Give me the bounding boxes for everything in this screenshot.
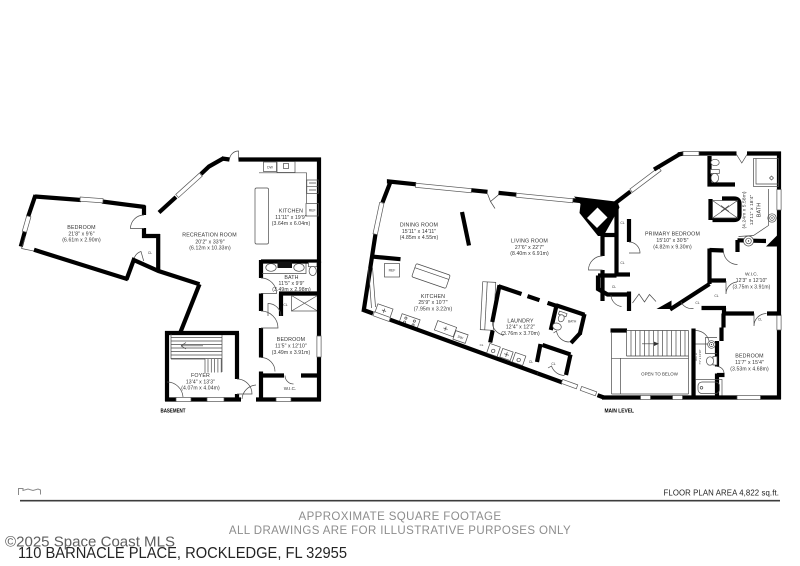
svg-text:PRIMARY BEDROOM: PRIMARY BEDROOM [645,231,700,237]
svg-text:KITCHEN: KITCHEN [421,294,445,300]
svg-text:LIVING ROOM: LIVING ROOM [511,239,548,245]
svg-text:25'9" x 10'7": 25'9" x 10'7" [418,300,447,306]
svg-text:APPROXIMATE SQUARE FOOTAGE: APPROXIMATE SQUARE FOOTAGE [299,511,502,523]
svg-text:FLOOR PLAN AREA 4,822 sq.ft.: FLOOR PLAN AREA 4,822 sq.ft. [664,489,779,498]
svg-text:20'2" x 33'9": 20'2" x 33'9" [195,239,224,245]
svg-text:BASEMENT: BASEMENT [161,408,186,414]
svg-text:CL: CL [612,285,616,289]
svg-text:27'6" x 22'7": 27'6" x 22'7" [515,245,544,251]
svg-text:(3.76m x 3.70m): (3.76m x 3.70m) [501,331,540,337]
svg-text:LAUNDRY: LAUNDRY [507,318,534,324]
svg-text:W.I.C.: W.I.C. [745,271,758,277]
svg-text:CL: CL [714,294,718,298]
svg-text:CL: CL [148,251,152,255]
svg-text:CL: CL [620,221,624,225]
svg-text:15'11" x 14'11": 15'11" x 14'11" [402,229,436,235]
svg-text:(8.40m x 6.91m): (8.40m x 6.91m) [510,251,549,257]
svg-text:BATH: BATH [284,275,298,281]
svg-text:REF: REF [309,209,316,213]
svg-text:MAIN LEVEL: MAIN LEVEL [605,408,635,414]
svg-text:BEDROOM: BEDROOM [735,354,763,360]
svg-text:(4.07m x 4.04m): (4.07m x 4.04m) [181,386,220,392]
svg-text:KITCHEN: KITCHEN [279,209,303,215]
svg-text:7'1" x 13'10": 7'1" x 13'10" [698,349,702,364]
svg-text:(7.95m x 3.22m): (7.95m x 3.22m) [414,307,453,313]
svg-text:(6.12m x 10.33m): (6.12m x 10.33m) [189,246,231,252]
svg-text:CL: CL [529,360,533,364]
svg-text:11'7" x 15'4": 11'7" x 15'4" [735,360,764,366]
svg-text:REF: REF [389,269,396,273]
svg-text:OPEN TO BELOW: OPEN TO BELOW [641,372,679,377]
svg-text:(3.49m x 3.91m): (3.49m x 3.91m) [272,350,311,356]
svg-text:FOYER: FOYER [191,373,210,379]
svg-text:DW: DW [267,166,273,170]
svg-text:DINING ROOM: DINING ROOM [400,223,438,229]
svg-text:(3.53m x 4.68m): (3.53m x 4.68m) [730,366,769,372]
svg-text:11'5" x 9'9": 11'5" x 9'9" [279,281,305,287]
svg-text:11'11" x 19'9": 11'11" x 19'9" [275,215,307,221]
svg-text:CL: CL [480,343,484,347]
svg-text:CL: CL [620,261,624,265]
svg-text:(3.75m x 3.91m): (3.75m x 3.91m) [733,285,771,291]
svg-text:BATH: BATH [757,203,763,217]
svg-text:(6.61m x 2.90m): (6.61m x 2.90m) [62,238,101,244]
svg-text:CL: CL [551,362,555,366]
svg-text:11'5" x 12'10": 11'5" x 12'10" [275,344,307,350]
svg-text:ALL DRAWINGS ARE FOR ILLUSTRAT: ALL DRAWINGS ARE FOR ILLUSTRATIVE PURPOS… [229,525,571,537]
svg-text:12'3" x 12'10": 12'3" x 12'10" [736,278,768,284]
svg-text:21'8" x 9'6": 21'8" x 9'6" [68,231,94,237]
svg-text:15'10" x 30'5": 15'10" x 30'5" [656,238,688,244]
svg-text:BATH: BATH [568,320,577,324]
svg-text:(4.24m x 5.58m): (4.24m x 5.58m) [742,191,748,228]
svg-text:13'4" x 13'3": 13'4" x 13'3" [186,379,215,385]
svg-text:BEDROOM: BEDROOM [277,337,305,343]
svg-text:12'4" x 12'2": 12'4" x 12'2" [506,325,535,331]
svg-text:(4.85m x 4.55m): (4.85m x 4.55m) [400,235,439,241]
svg-text:W.I.C.: W.I.C. [284,386,297,391]
svg-text:CL: CL [758,318,762,322]
svg-text:13'11" x 18'4": 13'11" x 18'4" [749,195,755,226]
svg-text:CL: CL [283,303,287,307]
svg-text:(3.64m x 6.04m): (3.64m x 6.04m) [272,221,311,227]
svg-text:CL: CL [695,301,699,305]
svg-text:110 BARNACLE PLACE, ROCKLEDGE,: 110 BARNACLE PLACE, ROCKLEDGE, FL 32955 [18,545,347,562]
svg-text:(4.82m x 9.30m): (4.82m x 9.30m) [653,244,692,250]
svg-text:RECREATION ROOM: RECREATION ROOM [182,233,237,239]
svg-text:BEDROOM: BEDROOM [67,225,95,231]
